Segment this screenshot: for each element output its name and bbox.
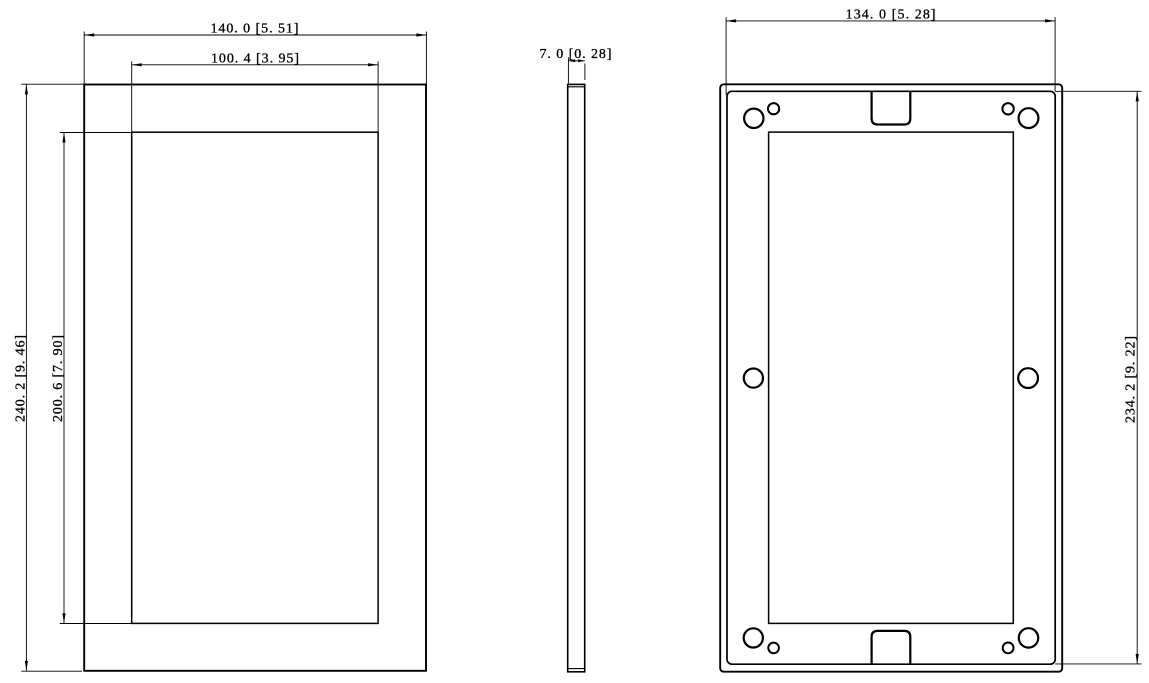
svg-text:134. 0 [5. 28]: 134. 0 [5. 28] — [846, 8, 936, 23]
svg-text:100. 4 [3. 95]: 100. 4 [3. 95] — [211, 51, 299, 66]
svg-text:140. 0 [5. 51]: 140. 0 [5. 51] — [211, 22, 299, 37]
svg-text:200. 6 [7. 90]: 200. 6 [7. 90] — [51, 335, 66, 422]
svg-text:7. 0 [0. 28]: 7. 0 [0. 28] — [540, 47, 612, 62]
svg-text:234. 2 [9. 22]: 234. 2 [9. 22] — [1123, 336, 1138, 423]
svg-text:240. 2 [9. 46]: 240. 2 [9. 46] — [13, 335, 28, 422]
